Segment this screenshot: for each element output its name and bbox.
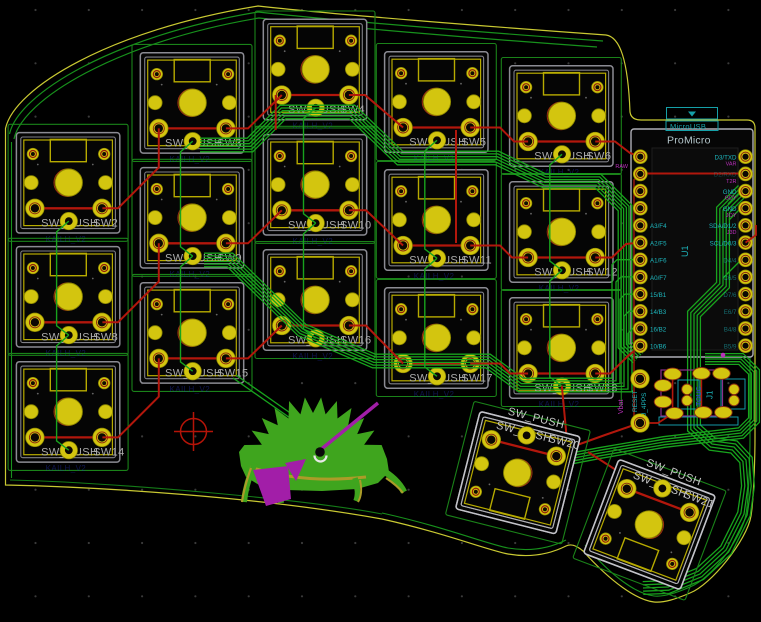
- svg-text:KAILH_V2: KAILH_V2: [46, 235, 87, 244]
- svg-text:C6/5: C6/5: [723, 275, 737, 282]
- svg-text:ProMicro: ProMicro: [667, 135, 711, 147]
- svg-text:SW8: SW8: [93, 331, 118, 343]
- svg-text:SCL/D0/3: SCL/D0/3: [710, 240, 737, 247]
- svg-text:T2R: T2R: [726, 179, 736, 185]
- svg-text:KAILH_V2: KAILH_V2: [539, 168, 580, 177]
- svg-text:B5/9: B5/9: [724, 344, 737, 351]
- svg-text:KAILH_V2: KAILH_V2: [414, 390, 455, 399]
- svg-text:J_4PPS: J_4PPS: [641, 392, 648, 416]
- svg-text:TOUC: TOUC: [696, 386, 703, 406]
- svg-text:VAR: VAR: [726, 162, 737, 168]
- svg-text:KAILH_V2: KAILH_V2: [539, 400, 580, 409]
- svg-text:SW12: SW12: [586, 267, 618, 279]
- svg-text:SW2: SW2: [93, 217, 118, 229]
- svg-text:Vbat: Vbat: [618, 400, 625, 414]
- svg-text:SW17: SW17: [461, 373, 493, 385]
- svg-text:A0/F7: A0/F7: [650, 275, 667, 282]
- svg-text:KAILH_V2: KAILH_V2: [46, 464, 87, 473]
- svg-text:10/B6: 10/B6: [650, 344, 667, 351]
- svg-text:RAW: RAW: [615, 164, 628, 170]
- svg-text:SW15: SW15: [217, 367, 249, 379]
- svg-text:SW10: SW10: [340, 219, 372, 231]
- svg-text:U1: U1: [680, 245, 690, 257]
- svg-text:A3/F4: A3/F4: [650, 223, 667, 230]
- svg-text:SW6: SW6: [586, 151, 611, 163]
- svg-text:SW14: SW14: [93, 446, 125, 458]
- svg-text:D2/RXD: D2/RXD: [714, 172, 737, 179]
- svg-text:D7/6: D7/6: [723, 292, 737, 299]
- svg-text:E6/7: E6/7: [724, 309, 737, 316]
- svg-text:14/B3: 14/B3: [650, 309, 667, 316]
- svg-text:A1/F6: A1/F6: [650, 258, 667, 265]
- svg-text:GND: GND: [723, 206, 737, 213]
- svg-text:16/B2: 16/B2: [650, 326, 667, 333]
- svg-text:D3/TXD: D3/TXD: [714, 155, 737, 162]
- svg-text:J3D: J3D: [727, 230, 737, 236]
- svg-text:KAILH_V2: KAILH_V2: [170, 385, 211, 394]
- svg-text:B4/8: B4/8: [724, 326, 737, 333]
- svg-text:D4/4: D4/4: [723, 258, 737, 265]
- svg-text:SW11: SW11: [461, 255, 492, 267]
- svg-text:SW5: SW5: [461, 137, 486, 149]
- svg-text:15/B1: 15/B1: [650, 292, 667, 299]
- svg-text:J1: J1: [706, 390, 715, 399]
- svg-text:RESET: RESET: [632, 390, 639, 412]
- svg-text:KAILH_V2: KAILH_V2: [539, 284, 580, 293]
- svg-text:JOY: JOY: [726, 213, 737, 219]
- svg-text:KAILH_V2: KAILH_V2: [293, 352, 334, 361]
- svg-text:A2/F5: A2/F5: [650, 240, 667, 247]
- svg-text:GDY: GDY: [725, 196, 737, 202]
- svg-text:MicroUSB: MicroUSB: [670, 122, 706, 131]
